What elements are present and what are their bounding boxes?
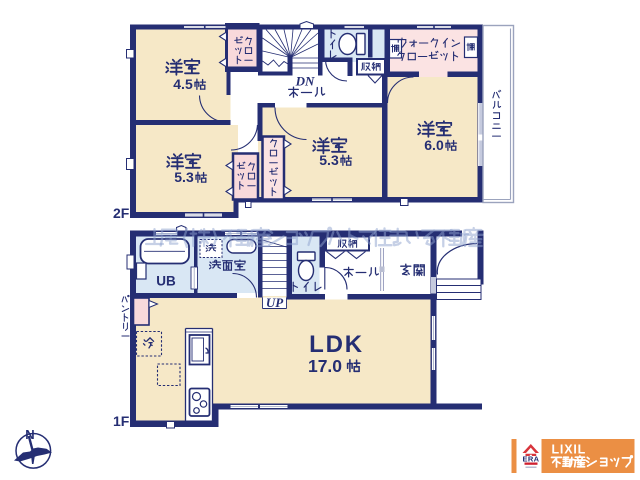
svg-text:1F: 1F <box>113 413 130 429</box>
svg-text:5.3: 5.3 <box>174 169 194 185</box>
svg-text:17.0: 17.0 <box>308 356 342 376</box>
svg-text:5.3: 5.3 <box>319 152 339 168</box>
svg-text:4.5: 4.5 <box>173 76 193 92</box>
svg-text:UB: UB <box>156 274 176 289</box>
svg-text:2F: 2F <box>113 205 130 221</box>
svg-text:DN: DN <box>295 74 315 89</box>
svg-text:UP: UP <box>266 295 284 310</box>
svg-text:LIXIL: LIXIL <box>552 443 587 457</box>
svg-text:6.0: 6.0 <box>424 137 444 153</box>
svg-text:ERA: ERA <box>522 455 539 464</box>
svg-text:LDK: LDK <box>309 331 364 358</box>
